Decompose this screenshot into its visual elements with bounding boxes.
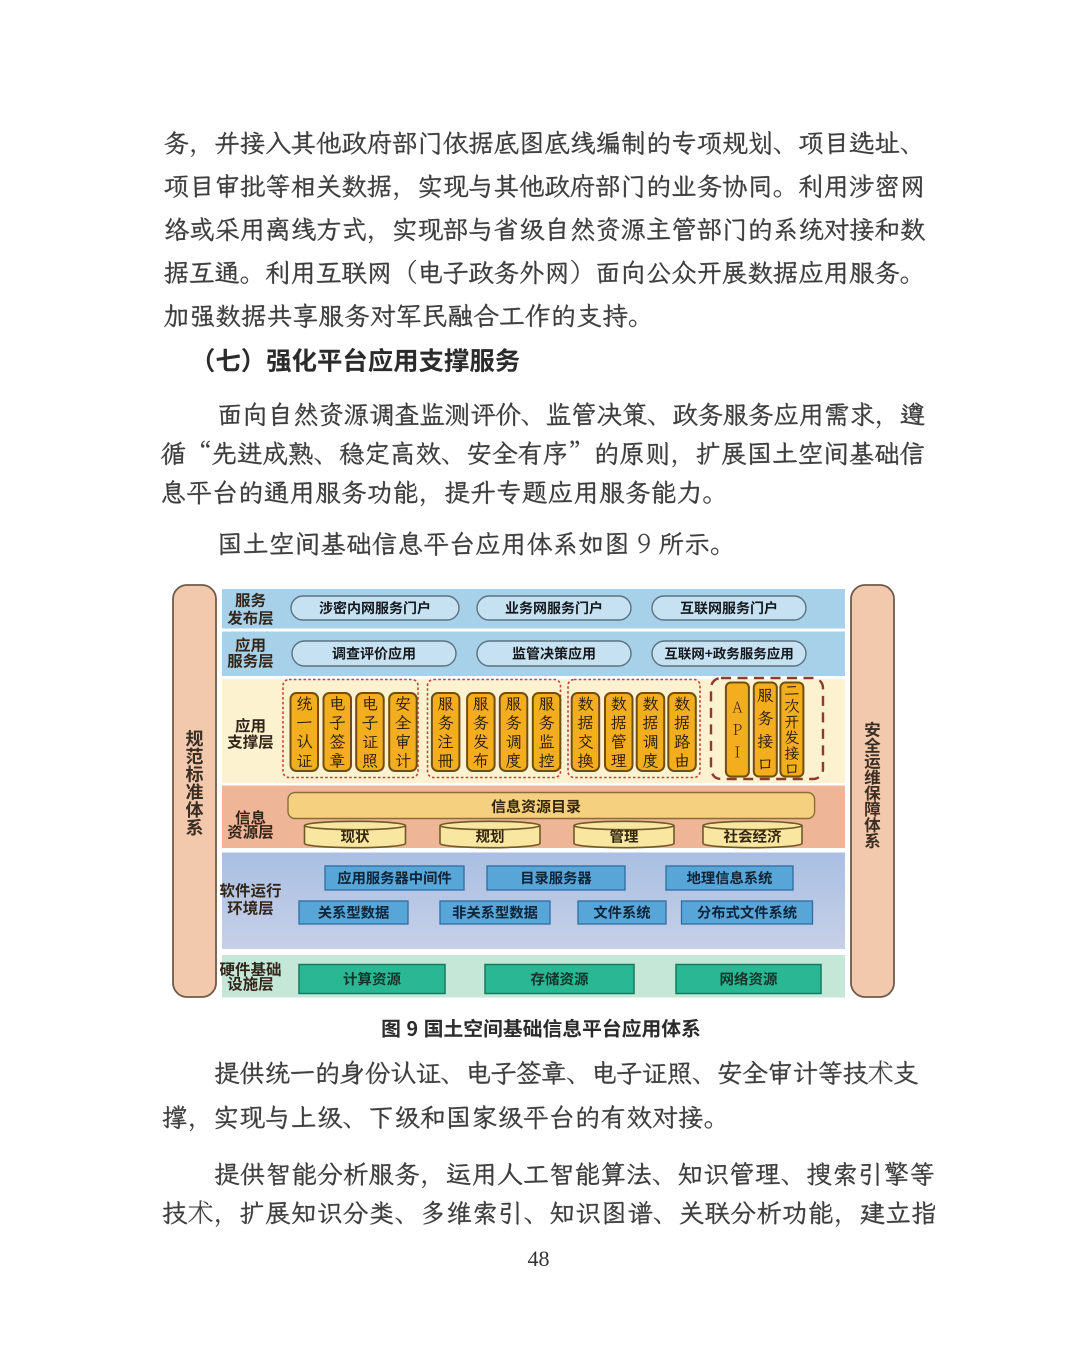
svg-text:48: 48	[528, 1246, 550, 1271]
